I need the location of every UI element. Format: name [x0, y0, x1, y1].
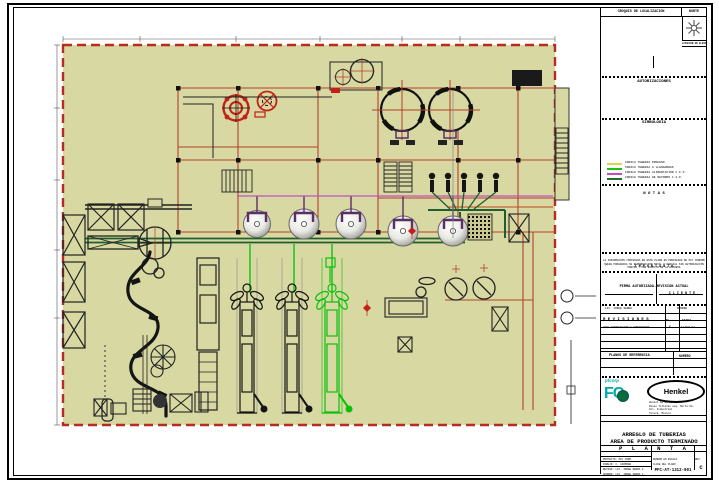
rev-line	[601, 313, 707, 314]
plant-plan-drawing	[14, 8, 599, 474]
firma-divider	[656, 274, 657, 304]
pfcorp-globe-icon	[617, 390, 629, 402]
rev-col-divider-1	[665, 304, 666, 351]
separator	[602, 271, 706, 273]
elevacion-label: LOCALIZACION EN ELEVACION	[682, 42, 706, 45]
building-footprint	[63, 45, 569, 425]
agitator-red	[222, 94, 250, 122]
croquis-divider	[682, 17, 683, 40]
legend-valve-manual: ⋈ INDICA VALVULA MANUAL	[607, 130, 705, 137]
planos-title: PLANOS DE REFERENCIA	[609, 354, 650, 358]
legend-valve-neumatica: ⋉ INDICA VALVULA NEUMATICA	[607, 137, 705, 144]
rev-value: C	[699, 464, 702, 471]
legend-valve-check: ⊳ INDICA VALVULA CHECK	[607, 122, 705, 129]
planos-divider	[673, 351, 674, 375]
pipe-proceso-swatch	[607, 163, 622, 165]
notas-title: N O T A S	[640, 192, 668, 196]
autorizaciones-title: AUTORIZACIONES	[637, 80, 671, 84]
rev-col-divider-2	[679, 304, 680, 351]
pfcorp-wordmark: pfcorp	[605, 378, 619, 383]
importante-line: PREVIA Y POR ESCRITO DE LA EMPRESA	[603, 266, 705, 269]
croquis-header: CROQUIS DE LOCALIZACION	[618, 10, 665, 14]
pipe-cip-alim-swatch	[607, 173, 622, 175]
firma-line-left	[605, 294, 653, 295]
legend-valve-doble-sello: ⊕ INDICA VALVULA DOBLE SELLO	[607, 145, 705, 152]
drawing-sheet: CROQUIS DE LOCALIZACION NORTE LOCALIZACI…	[0, 0, 719, 483]
separator	[602, 118, 706, 120]
planos-numero-label: NUMERO	[679, 354, 690, 358]
separator	[602, 304, 706, 306]
north-arrow-icon	[685, 19, 703, 37]
firma-dash: —	[621, 284, 641, 288]
title-block-panel: CROQUIS DE LOCALIZACION NORTE LOCALIZACI…	[600, 8, 707, 474]
legend-valve-diversora: ◇ INDICA VALVULA DIVERSORA	[607, 152, 705, 159]
pipe-cip-ret-swatch	[607, 178, 622, 180]
clave-value: PFC-AT-1312-001	[655, 469, 692, 473]
norte-header: NORTE	[689, 10, 699, 14]
separator	[602, 76, 706, 78]
info-fecha: FECHA: DICIEMBRE 2012	[603, 478, 636, 481]
henkel-logo: Henkel	[647, 380, 705, 403]
section-stub	[653, 56, 654, 68]
pipe-llenadoras-swatch	[607, 168, 622, 170]
